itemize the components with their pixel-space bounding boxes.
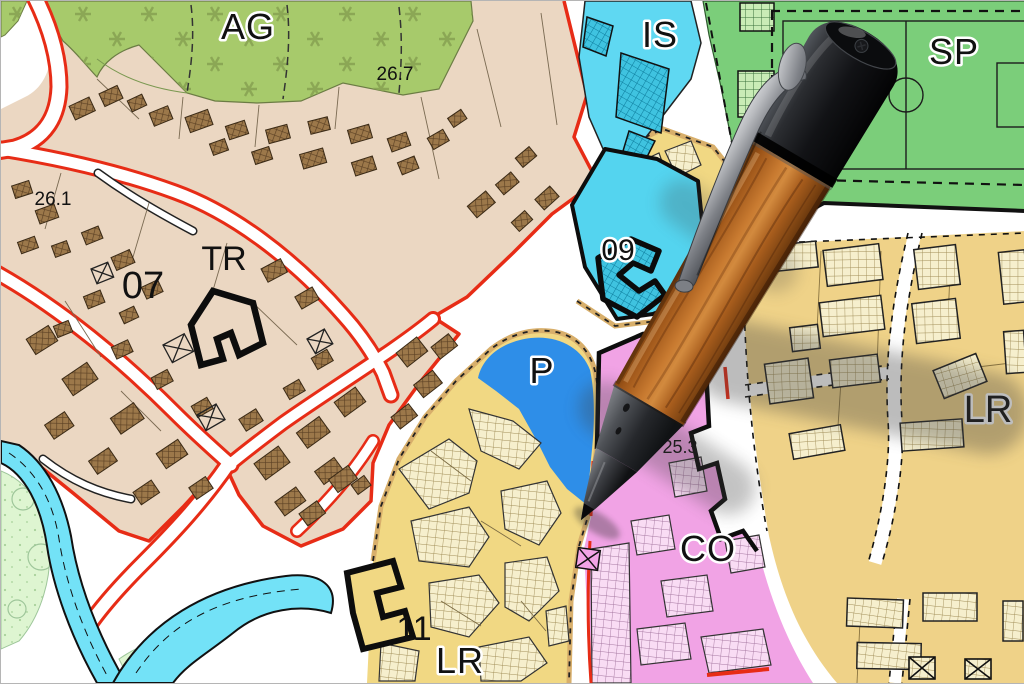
label-tr: TR	[201, 240, 246, 278]
label-sp: SP	[929, 31, 979, 72]
label-co: CO	[680, 528, 736, 569]
zoning-map: 07 TR 26.1 AG 26.7 IS SP 09	[1, 1, 1024, 683]
label-lr-bottom: LR	[436, 640, 484, 681]
label-is: IS	[642, 14, 678, 55]
label-09: 09	[601, 234, 634, 267]
label-p: P	[529, 350, 554, 391]
label-11: 11	[396, 610, 431, 648]
label-ag: AG	[221, 6, 275, 47]
label-07: 07	[122, 265, 164, 307]
label-26-1: 26.1	[35, 189, 72, 210]
co-x-parcel	[576, 548, 601, 571]
label-26-7: 26.7	[377, 64, 414, 85]
zoning-map-photo: 07 TR 26.1 AG 26.7 IS SP 09	[0, 0, 1024, 684]
